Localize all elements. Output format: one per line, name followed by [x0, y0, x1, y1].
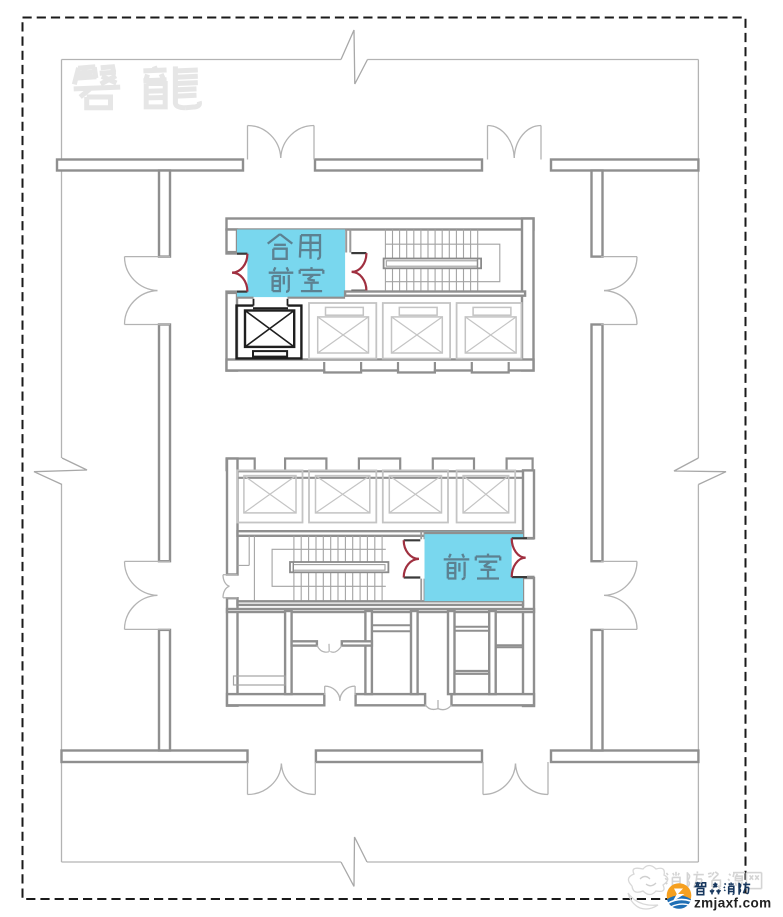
svg-text:zmjaxf.com: zmjaxf.com — [694, 896, 772, 911]
